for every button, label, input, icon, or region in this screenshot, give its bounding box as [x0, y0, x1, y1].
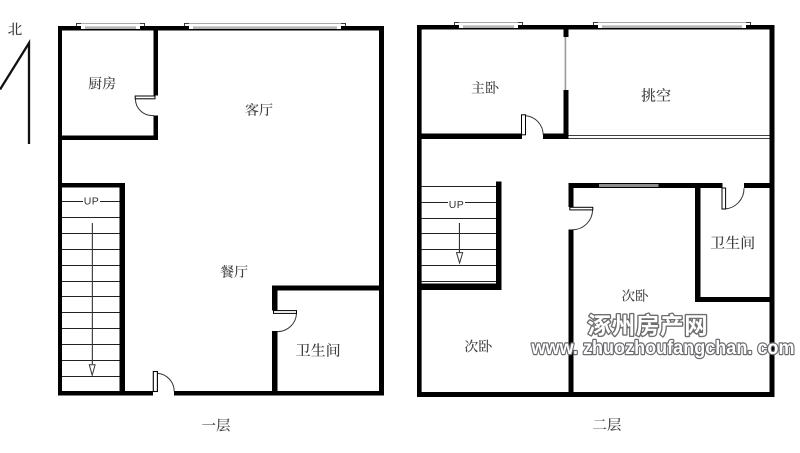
svg-text:www. zhuozhoufangchan. com: www. zhuozhoufangchan. com [531, 337, 795, 359]
svg-text:UP: UP [84, 196, 100, 208]
svg-text:UP: UP [449, 199, 465, 211]
